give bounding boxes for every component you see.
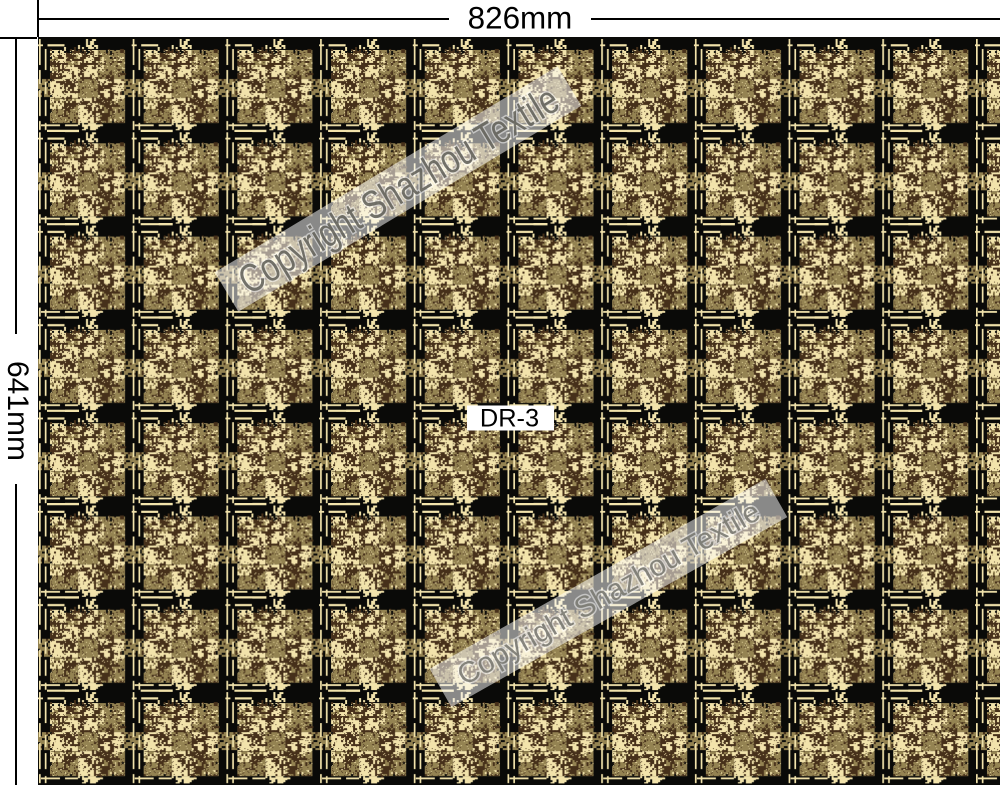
svg-text:DR-3: DR-3 (480, 405, 539, 433)
svg-text:826mm: 826mm (468, 1, 573, 36)
svg-text:641mm: 641mm (1, 361, 34, 461)
